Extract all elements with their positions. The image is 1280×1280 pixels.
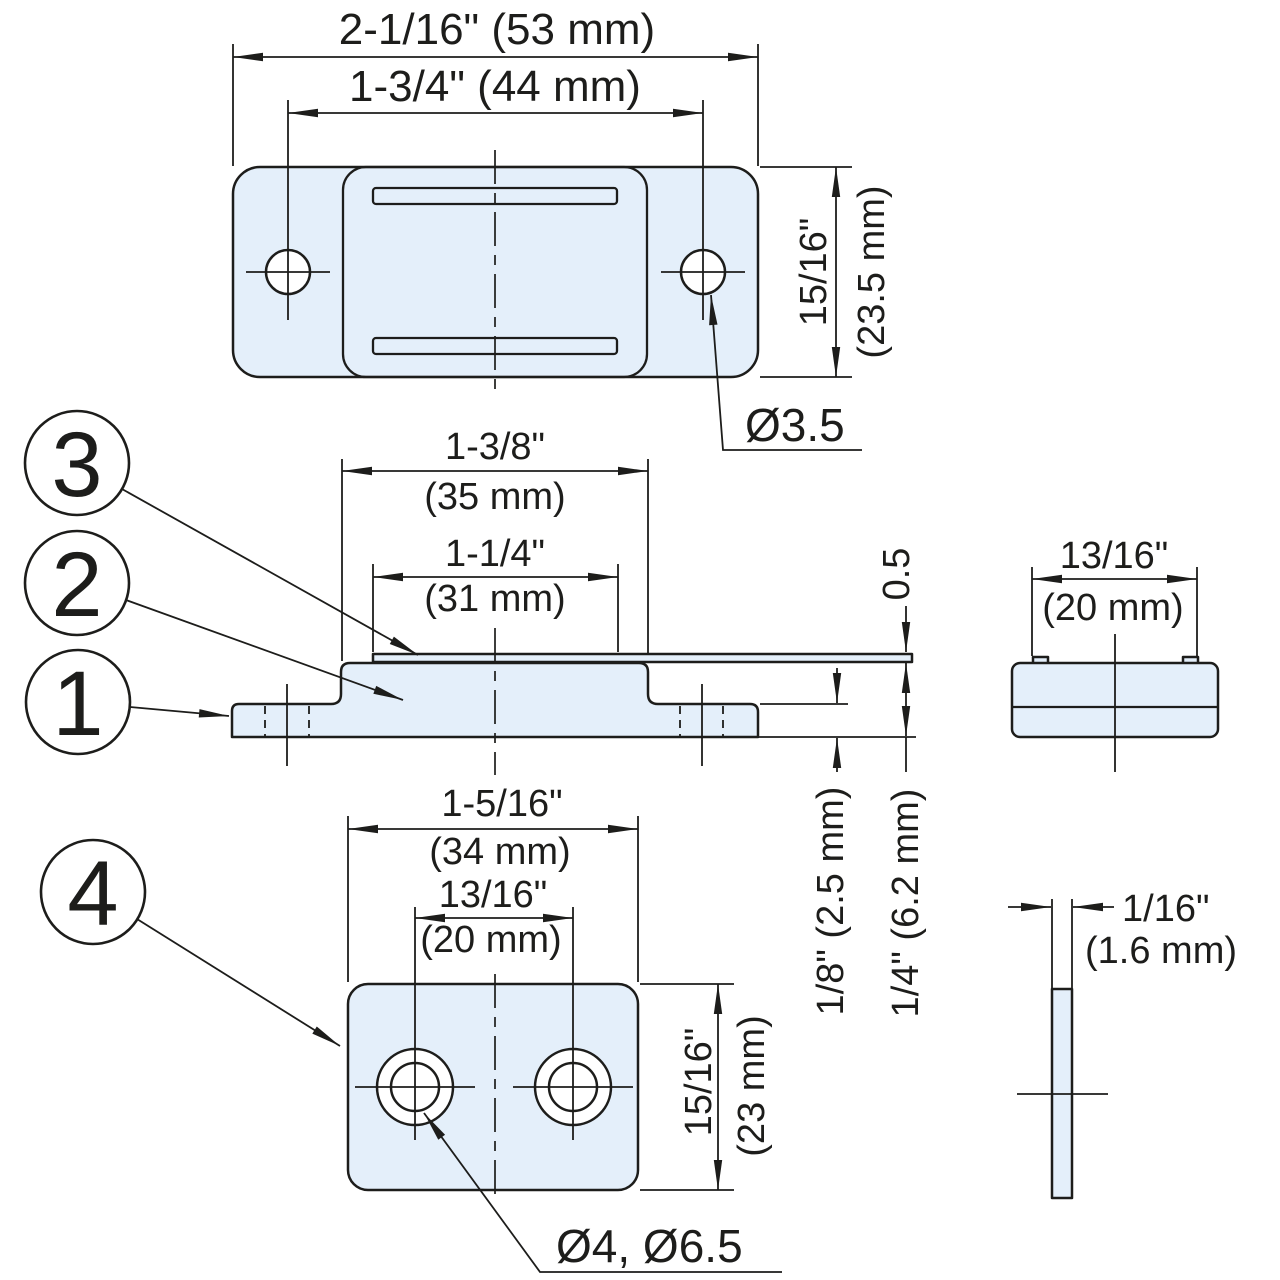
dim-overall-width: 2-1/16" (53 mm) [339, 5, 655, 54]
magnetic-catch-dimension-drawing: 2-1/16" (53 mm) 1-3/4" (44 mm) 15/16" (2… [0, 0, 1280, 1280]
dim-plate-hole-diameters: Ø4, Ø6.5 [556, 1220, 743, 1272]
dim-end-width-mm: (20 mm) [1042, 587, 1183, 629]
dim-plate-thickness-mm: (1.6 mm) [1085, 930, 1237, 972]
side-view-top-plate [373, 654, 912, 662]
dim-plate-overall-width-in: 1-5/16" [441, 783, 562, 825]
callout-number-1: 1 [52, 653, 103, 755]
dim-plate-hole-spacing-in: 13/16" [439, 874, 548, 916]
dim-hole-diameter: Ø3.5 [745, 399, 845, 451]
top-view: 2-1/16" (53 mm) 1-3/4" (44 mm) 15/16" (2… [233, 5, 893, 451]
callout-number-2: 2 [51, 534, 102, 636]
dim-height-in: 15/16" [793, 218, 835, 327]
dim-base-thickness: 1/8" (2.5 mm) [810, 787, 852, 1016]
dim-body-height: 1/4" (6.2 mm) [885, 789, 927, 1018]
technical-drawing-page: 2-1/16" (53 mm) 1-3/4" (44 mm) 15/16" (2… [0, 0, 1280, 1280]
dim-plate-height-mm: (23 mm) [731, 1015, 773, 1156]
dim-body-width-in: 1-3/8" [445, 426, 545, 468]
end-view: 13/16" (20 mm) [1012, 535, 1218, 772]
dim-plate-overall-width-mm: (34 mm) [429, 831, 570, 873]
dim-height-mm: (23.5 mm) [851, 185, 893, 358]
dim-plate-width-mm: (31 mm) [424, 578, 565, 620]
dim-plate-hole-spacing-mm: (20 mm) [420, 919, 561, 961]
dim-end-width-in: 13/16" [1060, 535, 1169, 577]
dim-plate-width-in: 1-1/4" [445, 533, 545, 575]
callout-number-4: 4 [67, 843, 118, 945]
dim-plate-thickness: 0.5 [876, 548, 918, 601]
callout-leader-1 [130, 707, 229, 716]
dim-plate-thickness-in: 1/16" [1122, 888, 1209, 930]
side-view: 1-3/8" (35 mm) 1-1/4" (31 mm) 0.5 1/8" (… [232, 426, 927, 1017]
callout-number-3: 3 [51, 414, 102, 516]
dim-body-width-mm: (35 mm) [424, 476, 565, 518]
callout-leader-4 [137, 919, 340, 1046]
strike-plate-view: 1-5/16" (34 mm) 13/16" (20 mm) 15/16" (2… [348, 783, 782, 1272]
plate-edge-view: 1/16" (1.6 mm) [1008, 888, 1237, 1198]
callout-leader-2 [126, 600, 403, 700]
dim-hole-spacing: 1-3/4" (44 mm) [349, 62, 641, 111]
dim-plate-height-in: 15/16" [678, 1028, 720, 1137]
